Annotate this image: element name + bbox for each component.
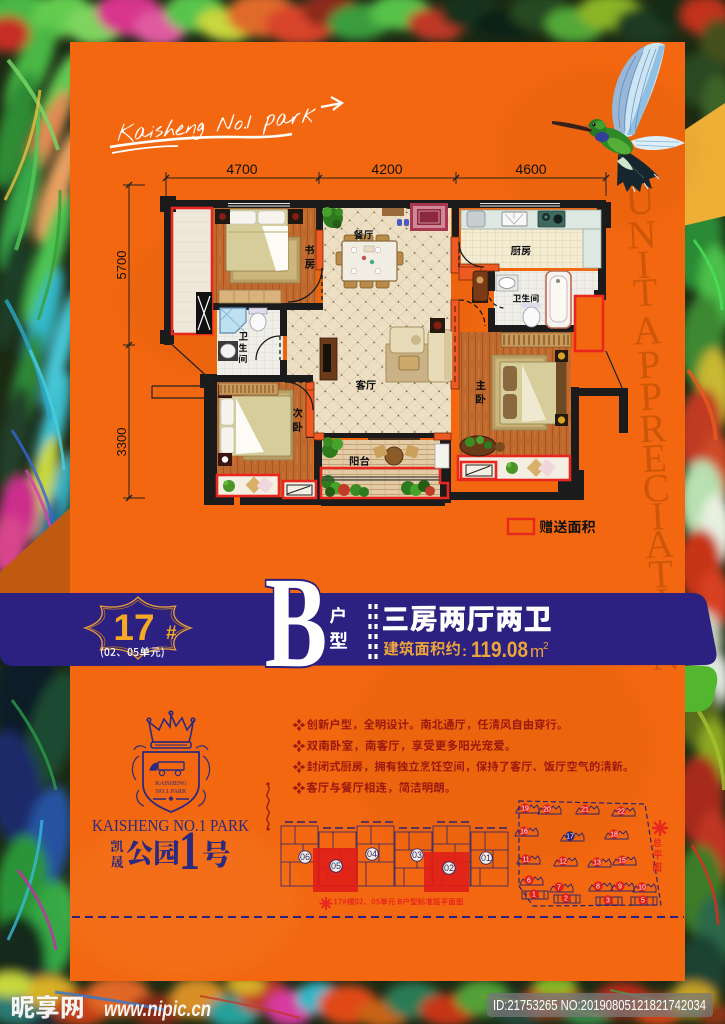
svg-text:18: 18 <box>610 832 618 839</box>
svg-text:10: 10 <box>638 885 646 892</box>
svg-text:5: 5 <box>641 898 645 905</box>
svg-text:13: 13 <box>593 860 601 867</box>
svg-text:ID:21753265 NO:201908051218217: ID:21753265 NO:20190805121821742034 <box>493 998 706 1014</box>
svg-text:03: 03 <box>412 850 422 860</box>
svg-text:05: 05 <box>331 861 341 871</box>
svg-text:01: 01 <box>481 853 491 863</box>
svg-text:B: B <box>265 550 327 695</box>
svg-text:KAISHENG: KAISHENG <box>155 780 187 787</box>
svg-text:#: # <box>166 623 177 644</box>
svg-text:4200: 4200 <box>371 161 402 177</box>
svg-text:04: 04 <box>367 849 377 859</box>
svg-text:www.nipic.cn: www.nipic.cn <box>104 998 211 1021</box>
svg-text:119.08: 119.08 <box>471 637 528 662</box>
svg-text:6: 6 <box>527 878 531 885</box>
svg-text:15: 15 <box>618 858 626 865</box>
svg-text:12: 12 <box>559 859 567 866</box>
svg-text:3: 3 <box>606 898 610 905</box>
svg-text:8: 8 <box>596 884 600 891</box>
svg-text:21: 21 <box>581 807 589 814</box>
svg-text:19: 19 <box>521 806 529 813</box>
svg-text:02: 02 <box>444 863 454 873</box>
svg-text:17: 17 <box>566 834 574 841</box>
svg-text:17: 17 <box>113 607 154 648</box>
svg-text:4700: 4700 <box>226 161 257 177</box>
svg-text:7: 7 <box>557 885 561 892</box>
svg-text:1: 1 <box>532 892 536 899</box>
svg-text:NO.1 PARK: NO.1 PARK <box>155 788 187 795</box>
svg-text::: : <box>462 643 467 660</box>
svg-text:KAISHENG NO.1 PARK: KAISHENG NO.1 PARK <box>92 816 249 835</box>
svg-text:11: 11 <box>522 857 529 864</box>
svg-text:2: 2 <box>543 641 549 652</box>
svg-text:20: 20 <box>543 807 551 814</box>
svg-text:22: 22 <box>617 809 625 816</box>
svg-text:5700: 5700 <box>114 251 129 280</box>
svg-text:4600: 4600 <box>515 161 546 177</box>
svg-text:3300: 3300 <box>114 428 129 457</box>
svg-text:2: 2 <box>564 896 568 903</box>
svg-text:9: 9 <box>618 884 622 891</box>
svg-text:06: 06 <box>300 852 310 862</box>
svg-text:16: 16 <box>520 829 528 836</box>
svg-text:1: 1 <box>179 819 200 881</box>
